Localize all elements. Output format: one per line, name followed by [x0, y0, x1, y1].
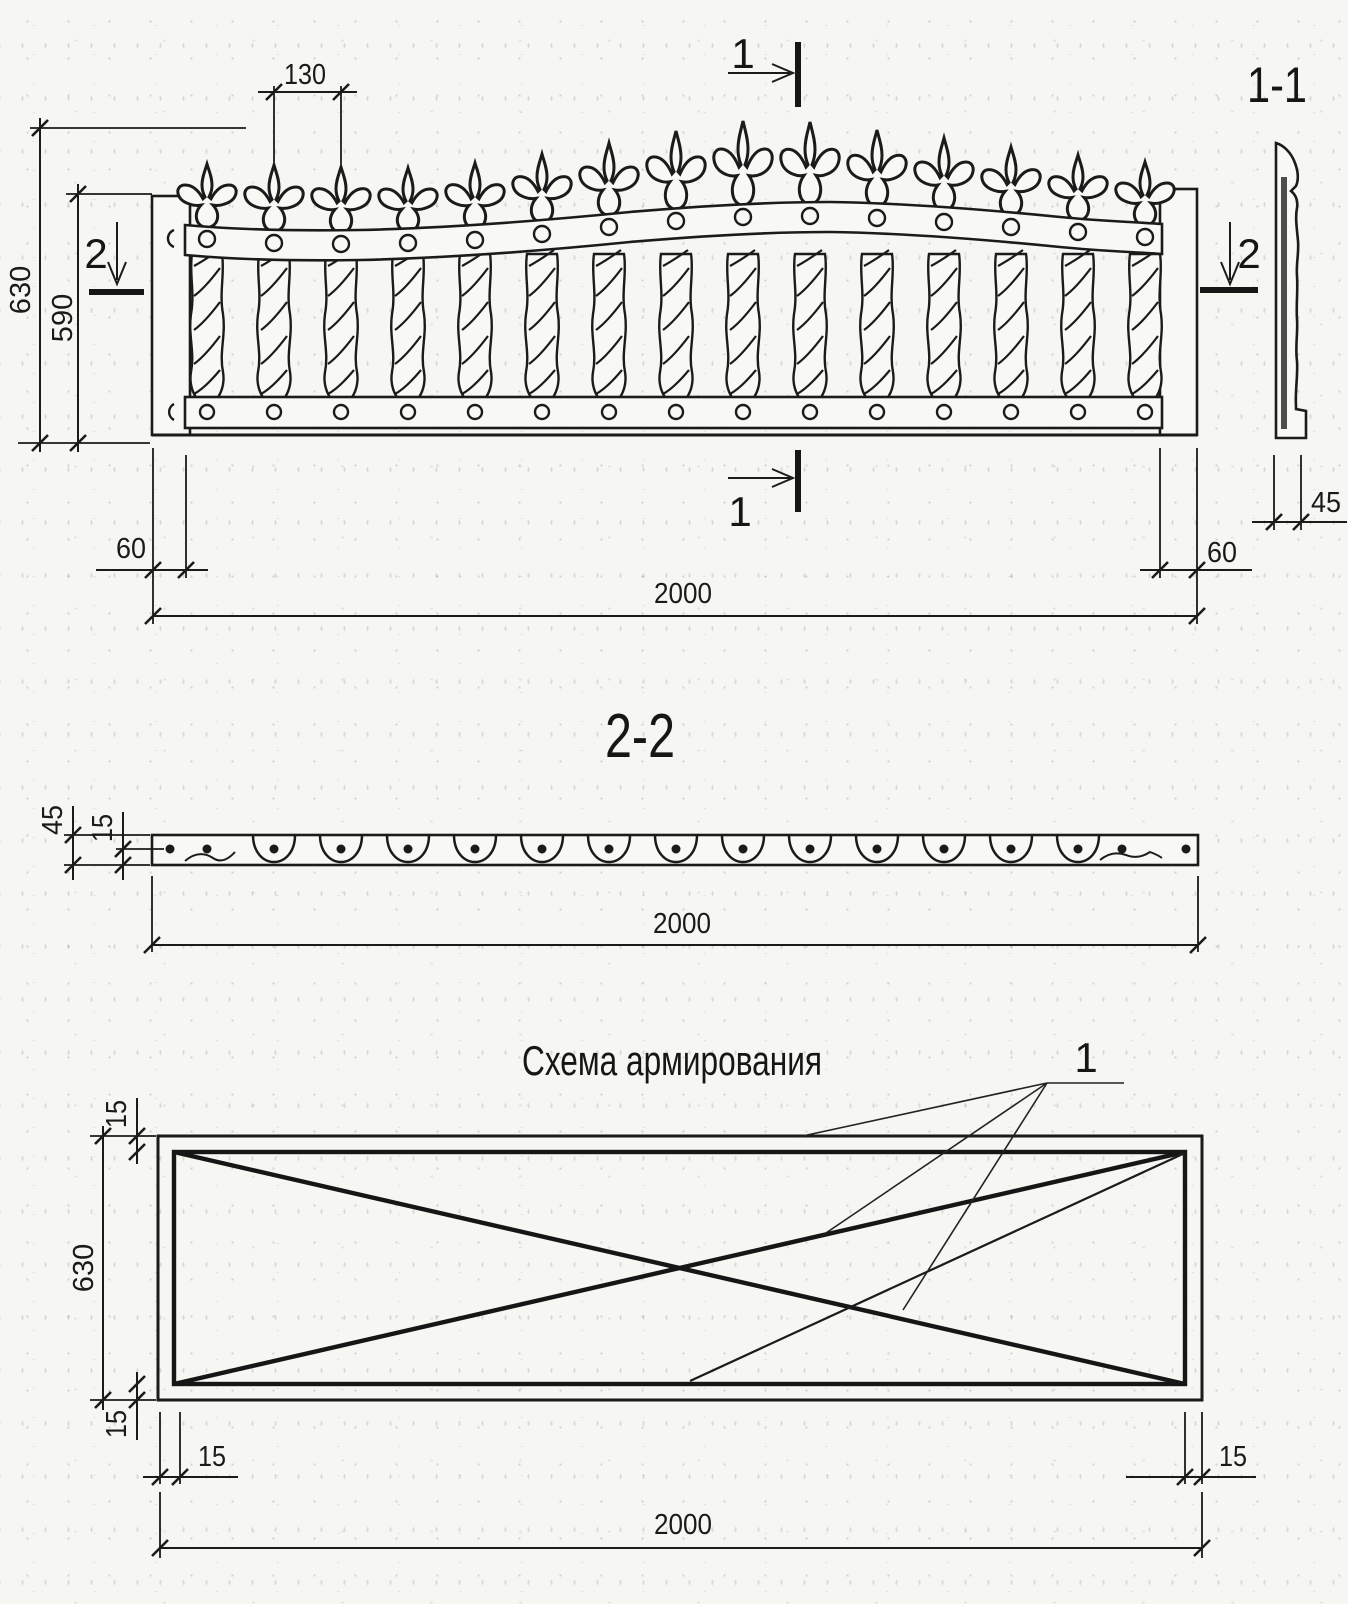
baluster: [659, 250, 693, 402]
section-2-2-view: 2-2: [37, 702, 1206, 953]
bottom-rail: [185, 397, 1162, 428]
rebar-dot: [270, 845, 279, 854]
baluster: [592, 250, 626, 402]
dim-630-scheme: 630: [68, 1126, 156, 1410]
rebar-dot: [739, 845, 748, 854]
baluster: [860, 250, 894, 402]
dim-2000-elevation: 2000: [145, 578, 1205, 624]
rebar-dot: [404, 845, 413, 854]
finial: [379, 168, 437, 232]
dim-15-left: 15: [143, 1412, 238, 1485]
rebar-dot: [1007, 845, 1016, 854]
baluster: [994, 250, 1028, 402]
section-marker-1-top: 1: [728, 30, 798, 107]
callout-1: 1: [798, 1034, 1124, 1310]
dim-15-left-label: 15: [198, 1441, 226, 1473]
dim-2000-scheme: 2000: [152, 1492, 1210, 1558]
dim-2000-elevation-label: 2000: [654, 578, 712, 610]
section-marker-2-left: 2: [84, 222, 144, 292]
side-profile: [1276, 143, 1306, 438]
baluster: [458, 250, 492, 402]
finial: [781, 122, 839, 205]
reinforcement-scheme: Схема армирования 1 15 630: [68, 1034, 1256, 1558]
baluster: [1061, 250, 1095, 402]
dim-15-right: 15: [1126, 1412, 1256, 1485]
panel-right-stile: [1160, 189, 1197, 435]
dim-60-left: 60: [96, 448, 208, 624]
dim-2000-section-label: 2000: [653, 908, 711, 940]
baluster: [1128, 250, 1162, 402]
dim-15-bottom: 15: [101, 1372, 145, 1440]
dim-2000-scheme-label: 2000: [654, 1509, 712, 1541]
rebar-dot: [1118, 845, 1127, 854]
rebar-dot: [873, 845, 882, 854]
baluster: [793, 250, 827, 402]
marker-1-bottom-label: 1: [728, 488, 751, 535]
baluster: [927, 250, 961, 402]
finial: [446, 163, 504, 229]
finial: [714, 121, 772, 206]
dim-130: 130: [258, 59, 357, 164]
finial: [647, 131, 705, 210]
baluster: [726, 250, 760, 402]
dim-15-section-label: 15: [87, 814, 119, 842]
dim-630-scheme-label: 630: [68, 1244, 100, 1292]
rebar-dot: [1182, 845, 1191, 854]
finial: [915, 138, 973, 211]
dim-2000-section: 2000: [144, 876, 1206, 953]
rebar-dot: [203, 845, 212, 854]
balusters: [190, 250, 1162, 402]
rebar-dot: [166, 845, 175, 854]
bent-bar: [690, 1153, 1185, 1381]
dim-60-right-label: 60: [1207, 537, 1237, 569]
side-section-1-1: 1-1 45: [1247, 57, 1347, 530]
rebar-dot: [605, 845, 614, 854]
rebar-dot: [940, 845, 949, 854]
rebar-dot: [471, 845, 480, 854]
dim-590-label: 590: [47, 294, 79, 342]
dim-15-top-label: 15: [101, 1100, 133, 1128]
dim-15-right-label: 15: [1219, 1441, 1247, 1473]
blueprint-sheet: 130 630 590 1 1: [0, 0, 1348, 1604]
dim-60-left-label: 60: [116, 533, 146, 565]
finial: [580, 143, 638, 216]
dim-630-label: 630: [5, 266, 37, 314]
fence-panel-drawing: 130 630 590 1 1: [0, 0, 1348, 1604]
rebar-dot: [672, 845, 681, 854]
marker-1-top-label: 1: [731, 30, 754, 77]
finial: [848, 130, 906, 207]
marker-2-left-label: 2: [84, 230, 107, 277]
side-section-title: 1-1: [1247, 57, 1307, 113]
dim-15-bottom-label: 15: [101, 1410, 133, 1438]
baluster: [257, 250, 291, 402]
finial: [1049, 155, 1107, 221]
rebar-dot: [806, 845, 815, 854]
side-profile-rebar: [1281, 177, 1287, 429]
reinforcement-title: Схема армирования: [522, 1037, 822, 1084]
marker-2-right-label: 2: [1237, 230, 1260, 277]
rebar-dot: [538, 845, 547, 854]
finial: [312, 167, 370, 233]
callout-1-label: 1: [1074, 1034, 1097, 1081]
dim-45-side: 45: [1252, 455, 1347, 530]
dim-60-right: 60: [1140, 448, 1252, 624]
rebar-dot: [337, 845, 346, 854]
finial: [982, 147, 1040, 216]
baluster: [324, 250, 358, 402]
baluster: [391, 250, 425, 402]
finial: [245, 165, 303, 232]
dim-45-section-label: 45: [37, 805, 69, 835]
rebar-dot: [1074, 845, 1083, 854]
section-marker-2-right: 2: [1200, 222, 1261, 290]
baluster: [190, 250, 224, 402]
section-marker-1-bottom: 1: [728, 450, 798, 535]
finial: [513, 154, 571, 223]
section-2-2-title: 2-2: [605, 702, 675, 771]
elevation-view: 130 630 590 1 1: [5, 30, 1347, 624]
baluster: [525, 250, 559, 402]
dim-45-side-label: 45: [1311, 487, 1341, 519]
dim-130-label: 130: [284, 59, 326, 91]
